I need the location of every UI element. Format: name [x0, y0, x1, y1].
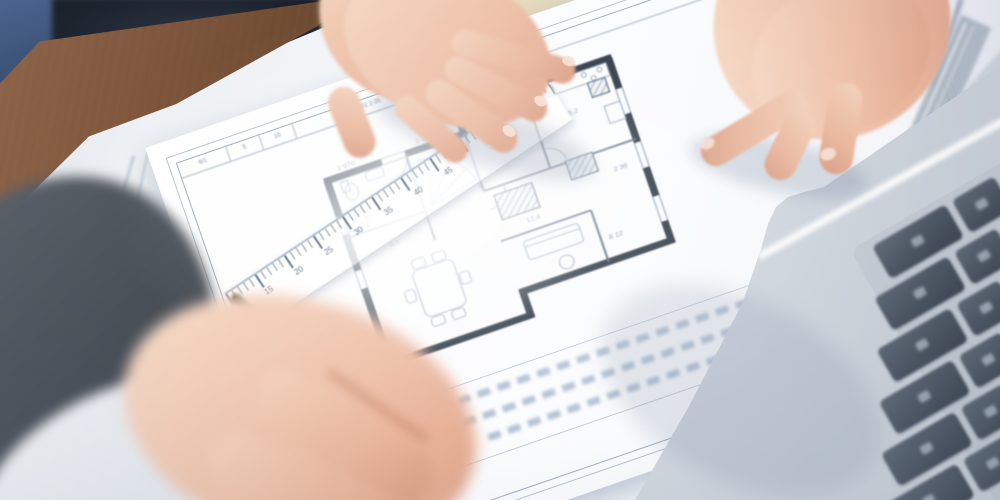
header-mark: 5	[242, 144, 247, 151]
laptop-key	[952, 176, 1000, 233]
header-mark: 10	[274, 132, 282, 140]
key-legend	[981, 353, 996, 367]
header-mark: 6/1	[198, 158, 208, 166]
photo-scene: 6/1 5 10 64 101 2-35 8	[0, 0, 1000, 500]
key-legend	[912, 286, 927, 300]
key-legend	[921, 493, 936, 500]
key-legend	[983, 404, 998, 418]
key-legend	[915, 338, 930, 352]
key-legend	[910, 234, 925, 248]
key-legend	[974, 197, 989, 211]
key-legend	[976, 249, 991, 263]
key-legend	[919, 441, 934, 455]
key-legend	[917, 390, 932, 404]
key-legend	[979, 301, 994, 315]
key-legend	[985, 456, 1000, 470]
